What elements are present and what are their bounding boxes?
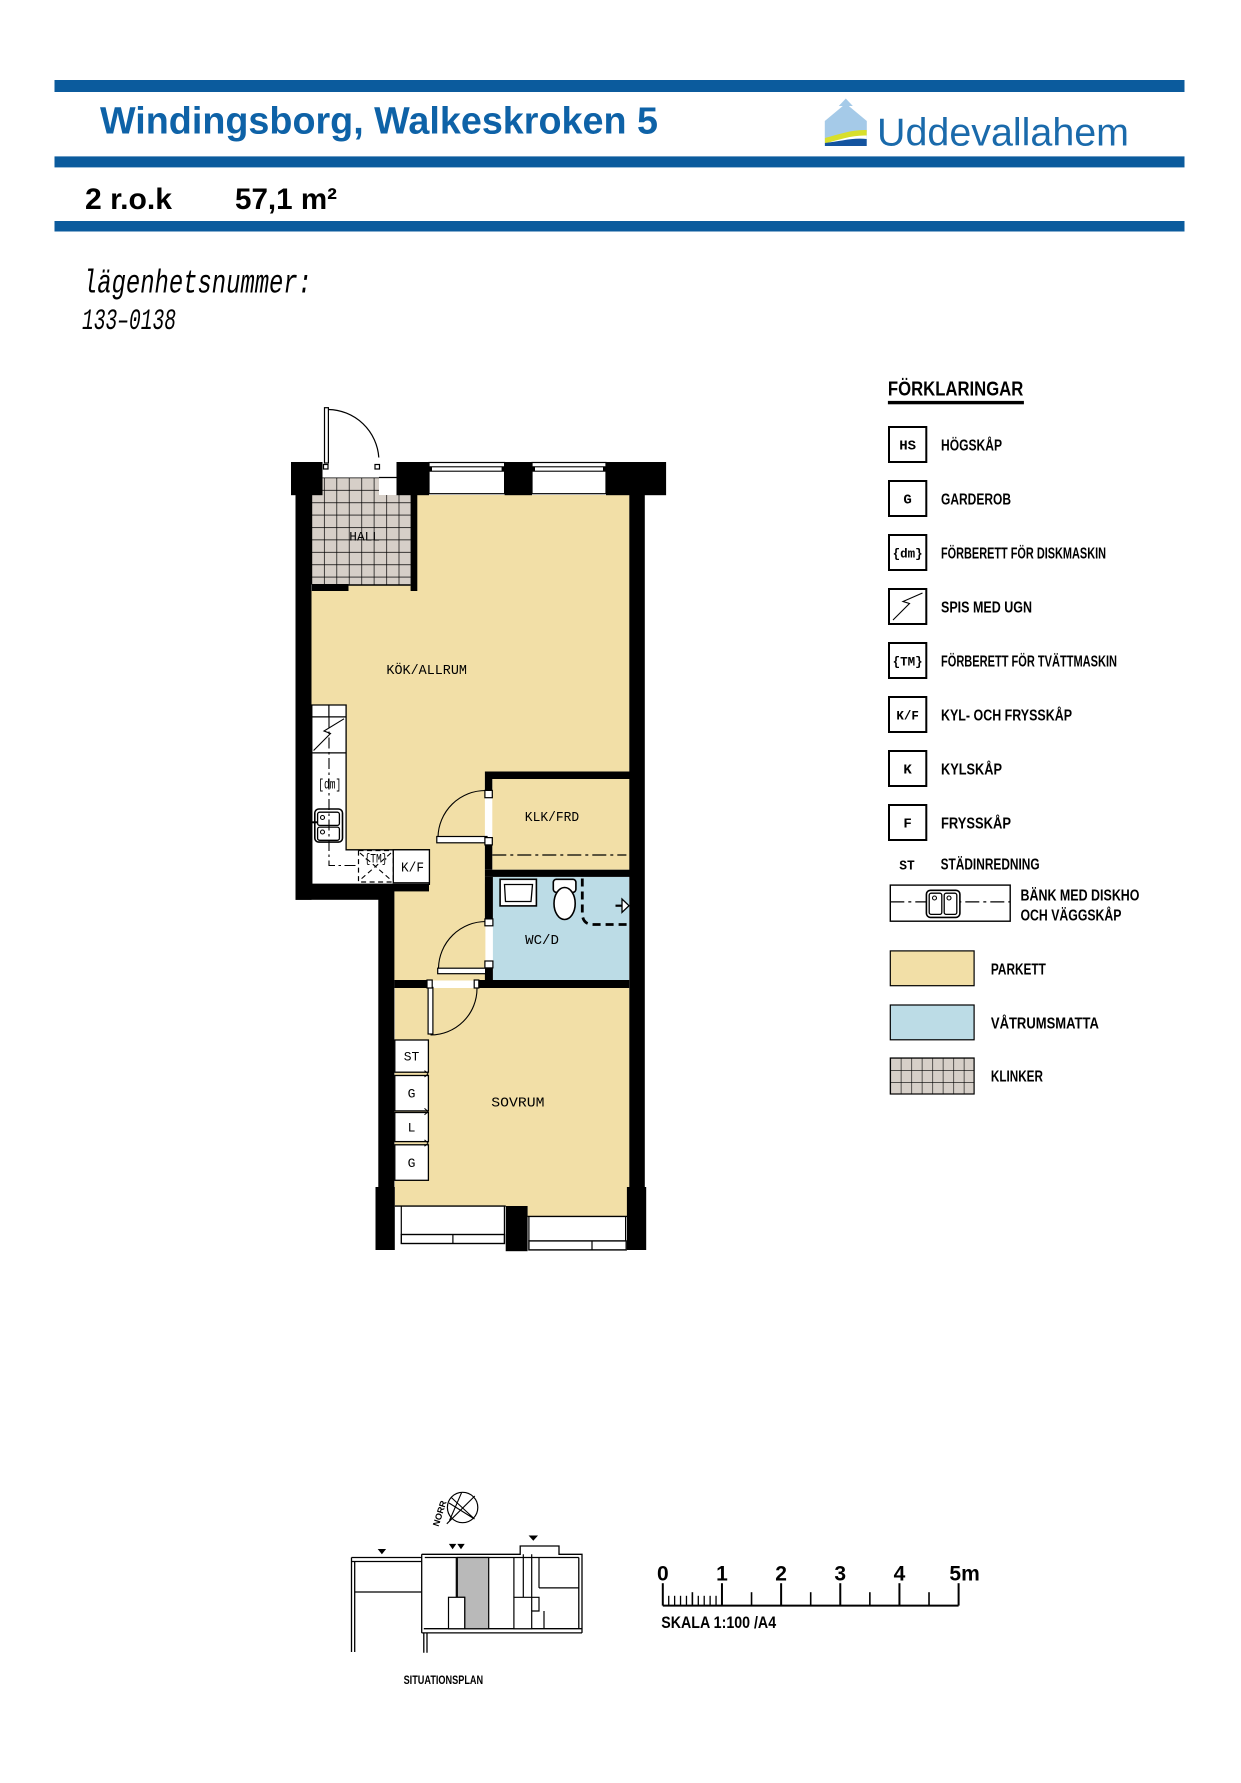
svg-text:KLK/FRD: KLK/FRD <box>525 811 579 826</box>
svg-text:HALL: HALL <box>349 530 380 545</box>
svg-text:K: K <box>903 763 912 779</box>
svg-text:SKALA 1:100 /A4: SKALA 1:100 /A4 <box>661 1614 777 1632</box>
svg-text:FÖRBERETT FÖR TVÄTTMASKIN: FÖRBERETT FÖR TVÄTTMASKIN <box>941 654 1117 671</box>
svg-text:3: 3 <box>834 1562 846 1585</box>
svg-text:{TM}: {TM} <box>365 853 388 867</box>
svg-text:WC/D: WC/D <box>525 934 559 949</box>
svg-text:HS: HS <box>899 439 916 455</box>
svg-text:K/F: K/F <box>401 862 424 877</box>
svg-text:{dm}: {dm} <box>893 548 923 562</box>
svg-text:BÄNK MED DISKHO: BÄNK MED DISKHO <box>1021 888 1140 905</box>
svg-text:PARKETT: PARKETT <box>991 962 1046 979</box>
svg-text:KÖK/ALLRUM: KÖK/ALLRUM <box>386 664 467 679</box>
svg-text:2: 2 <box>775 1562 787 1585</box>
svg-text:HÖGSKÅP: HÖGSKÅP <box>941 438 1002 455</box>
svg-text:L: L <box>408 1121 416 1136</box>
svg-text:133–0138: 133–0138 <box>82 305 176 339</box>
svg-text:G: G <box>408 1087 416 1102</box>
svg-text:[dm]: [dm] <box>318 778 341 793</box>
svg-text:4: 4 <box>894 1562 906 1585</box>
svg-text:KLINKER: KLINKER <box>991 1069 1043 1086</box>
svg-text:0: 0 <box>657 1562 669 1585</box>
svg-text:K/F: K/F <box>896 710 919 724</box>
svg-text:FÖRKLARINGAR: FÖRKLARINGAR <box>888 378 1024 401</box>
svg-text:SITUATIONSPLAN: SITUATIONSPLAN <box>404 1673 484 1687</box>
svg-text:ST: ST <box>404 1050 420 1065</box>
svg-text:VÅTRUMSMATTA: VÅTRUMSMATTA <box>991 1016 1099 1033</box>
svg-text:KYLSKÅP: KYLSKÅP <box>941 762 1002 779</box>
svg-text:FÖRBERETT FÖR DISKMASKIN: FÖRBERETT FÖR DISKMASKIN <box>941 546 1106 563</box>
svg-text:FRYSSKÅP: FRYSSKÅP <box>941 816 1011 833</box>
svg-text:lägenhetsnummer:: lägenhetsnummer: <box>83 266 312 303</box>
svg-text:57,1 m²: 57,1 m² <box>235 183 337 216</box>
svg-text:F: F <box>903 817 911 833</box>
svg-text:{TM}: {TM} <box>893 656 923 670</box>
svg-text:2 r.o.k: 2 r.o.k <box>85 183 172 216</box>
svg-text:OCH VÄGGSKÅP: OCH VÄGGSKÅP <box>1021 908 1122 925</box>
svg-text:SPIS MED UGN: SPIS MED UGN <box>941 600 1032 617</box>
svg-text:STÄDINREDNING: STÄDINREDNING <box>941 857 1040 874</box>
svg-text:5m: 5m <box>949 1562 979 1585</box>
svg-text:KYL- OCH FRYSSKÅP: KYL- OCH FRYSSKÅP <box>941 708 1072 725</box>
svg-text:1: 1 <box>716 1562 728 1585</box>
svg-text:G: G <box>408 1156 416 1171</box>
svg-text:Windingsborg, Walkeskroken 5: Windingsborg, Walkeskroken 5 <box>100 101 658 143</box>
svg-text:GARDEROB: GARDEROB <box>941 492 1011 509</box>
svg-text:G: G <box>903 493 911 509</box>
svg-text:SOVRUM: SOVRUM <box>491 1097 544 1112</box>
svg-text:ST: ST <box>899 859 915 875</box>
svg-text:Uddevallahem: Uddevallahem <box>877 112 1129 155</box>
